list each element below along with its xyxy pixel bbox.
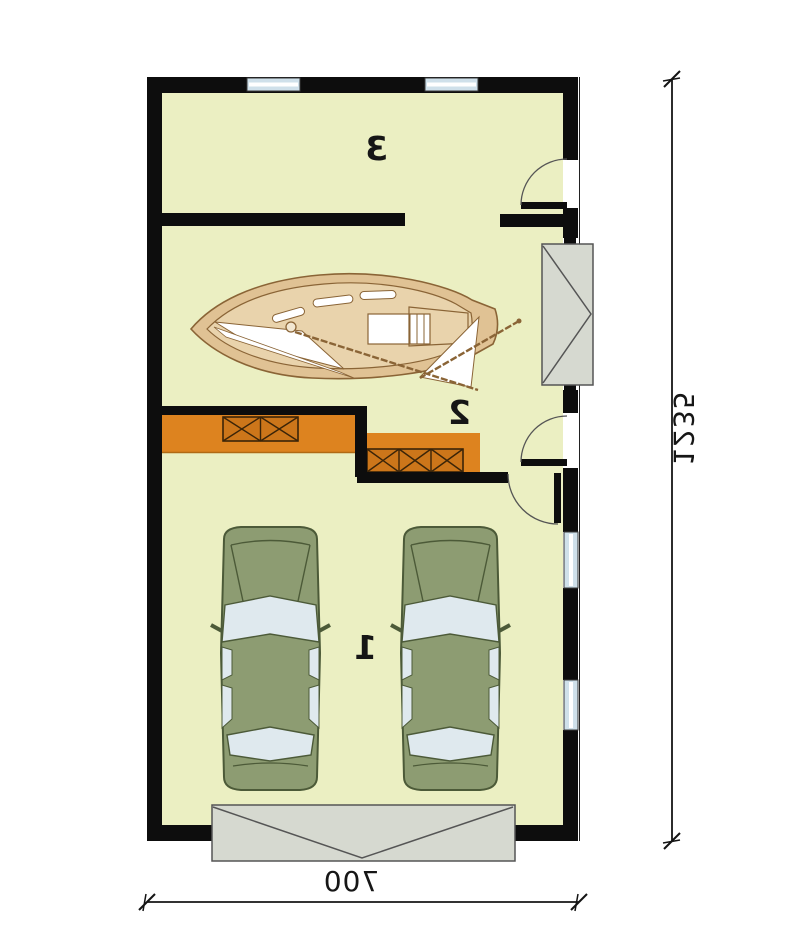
dimension-height-label: 1235 (669, 368, 699, 488)
top-window-2 (425, 78, 478, 91)
boat-cockpit (368, 314, 430, 344)
room-label-1: 1 (335, 629, 395, 665)
room-label-2: 2 (429, 394, 489, 430)
boat-gate-panel (542, 244, 593, 385)
wall-right-4 (563, 468, 578, 532)
top-window-1 (247, 78, 300, 91)
stair-top-wall (162, 406, 365, 415)
right-window-1 (564, 532, 578, 588)
wall-left (147, 77, 162, 841)
wall-interior-room3-right (500, 214, 567, 227)
right-window-2 (564, 680, 578, 730)
wall-interior-room3 (162, 213, 405, 226)
floor-plan: 3 2 1 700 1235 (0, 0, 800, 946)
wall-right-1 (563, 77, 578, 160)
car-right (391, 527, 510, 790)
wall-right-3 (563, 390, 578, 413)
wall-bottom-left (147, 825, 213, 841)
boat-mast-base (286, 322, 296, 332)
wall-right-6 (563, 730, 578, 841)
wall-top (147, 77, 578, 93)
stair-step-wall (355, 406, 367, 477)
wall-room2-south (357, 472, 508, 483)
room-label-3: 3 (346, 130, 406, 166)
garage-door-panel (212, 805, 515, 861)
dimension-width-label: 700 (301, 866, 401, 896)
car-left (211, 527, 330, 790)
gate-jamb-top (564, 233, 576, 245)
wall-right-5 (563, 588, 578, 680)
